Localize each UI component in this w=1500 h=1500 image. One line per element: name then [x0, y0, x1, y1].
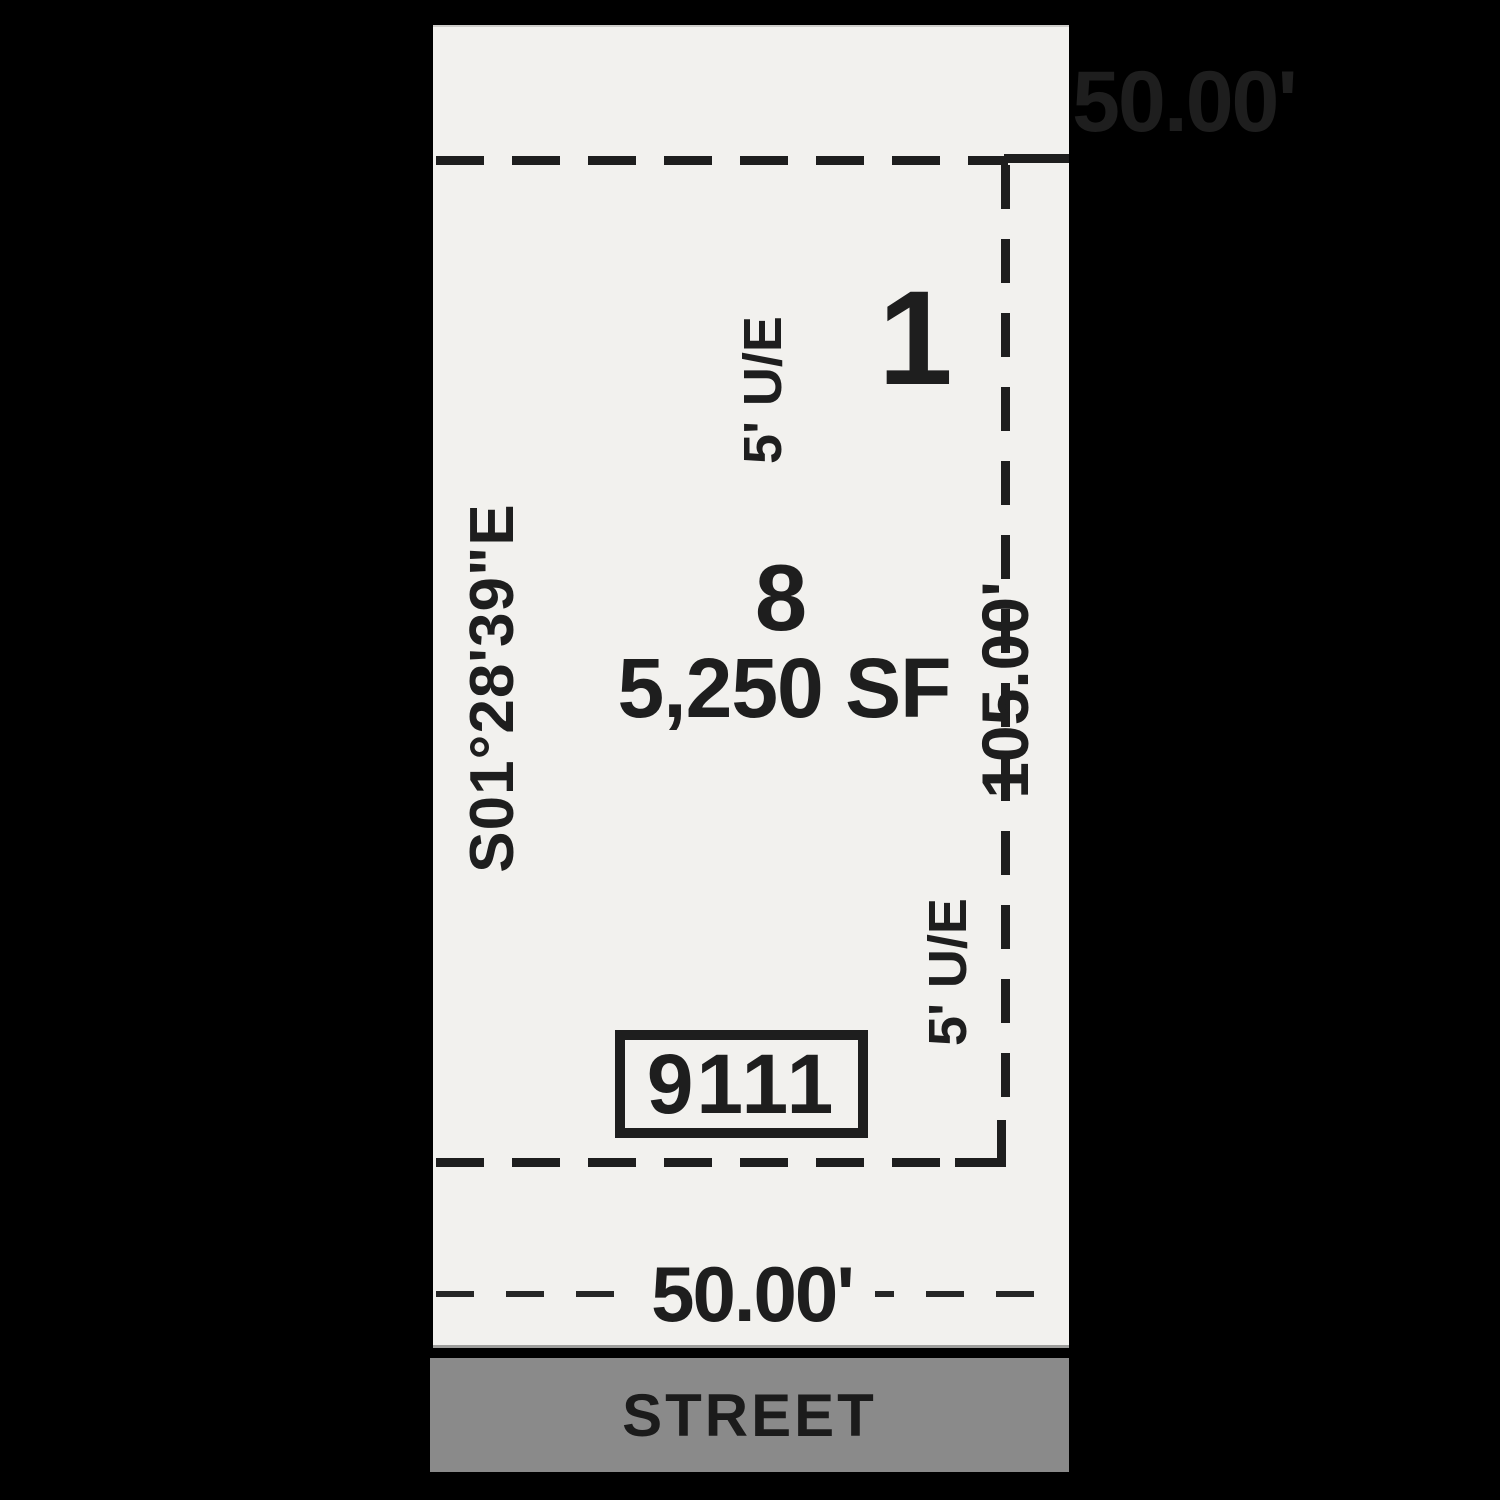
easement-label-south: 5' U/E: [918, 877, 978, 1067]
street-label: STREET: [622, 1381, 877, 1450]
lot-number: 8: [681, 548, 881, 648]
address-number: 9111: [647, 1036, 837, 1133]
street-band: STREET: [430, 1358, 1069, 1472]
plat-paper: 50.00' S01°28'39"E 105.00' 5' U/E 5' U/E…: [433, 25, 1069, 1348]
dimension-south-label: 50.00': [629, 1252, 875, 1336]
lot-line-north: [436, 156, 1008, 165]
easement-line-south: [436, 1158, 960, 1167]
plat-scan: 50.00' S01°28'39"E 105.00' 5' U/E 5' U/E…: [0, 0, 1500, 1500]
lot-line-north-east-stub: [1004, 154, 1069, 163]
dimension-north-label: 50.00': [874, 57, 1494, 147]
easement-label-north: 5' U/E: [733, 295, 793, 485]
lot-area: 5,250 SF: [534, 638, 1034, 738]
address-box: 9111: [615, 1030, 868, 1138]
bearing-west-label: S01°28'39"E: [457, 463, 527, 913]
adjacent-lot-number: 1: [858, 272, 973, 404]
dimension-south: 50.00': [436, 1252, 1068, 1336]
easement-corner-horizontal: [955, 1158, 1006, 1167]
